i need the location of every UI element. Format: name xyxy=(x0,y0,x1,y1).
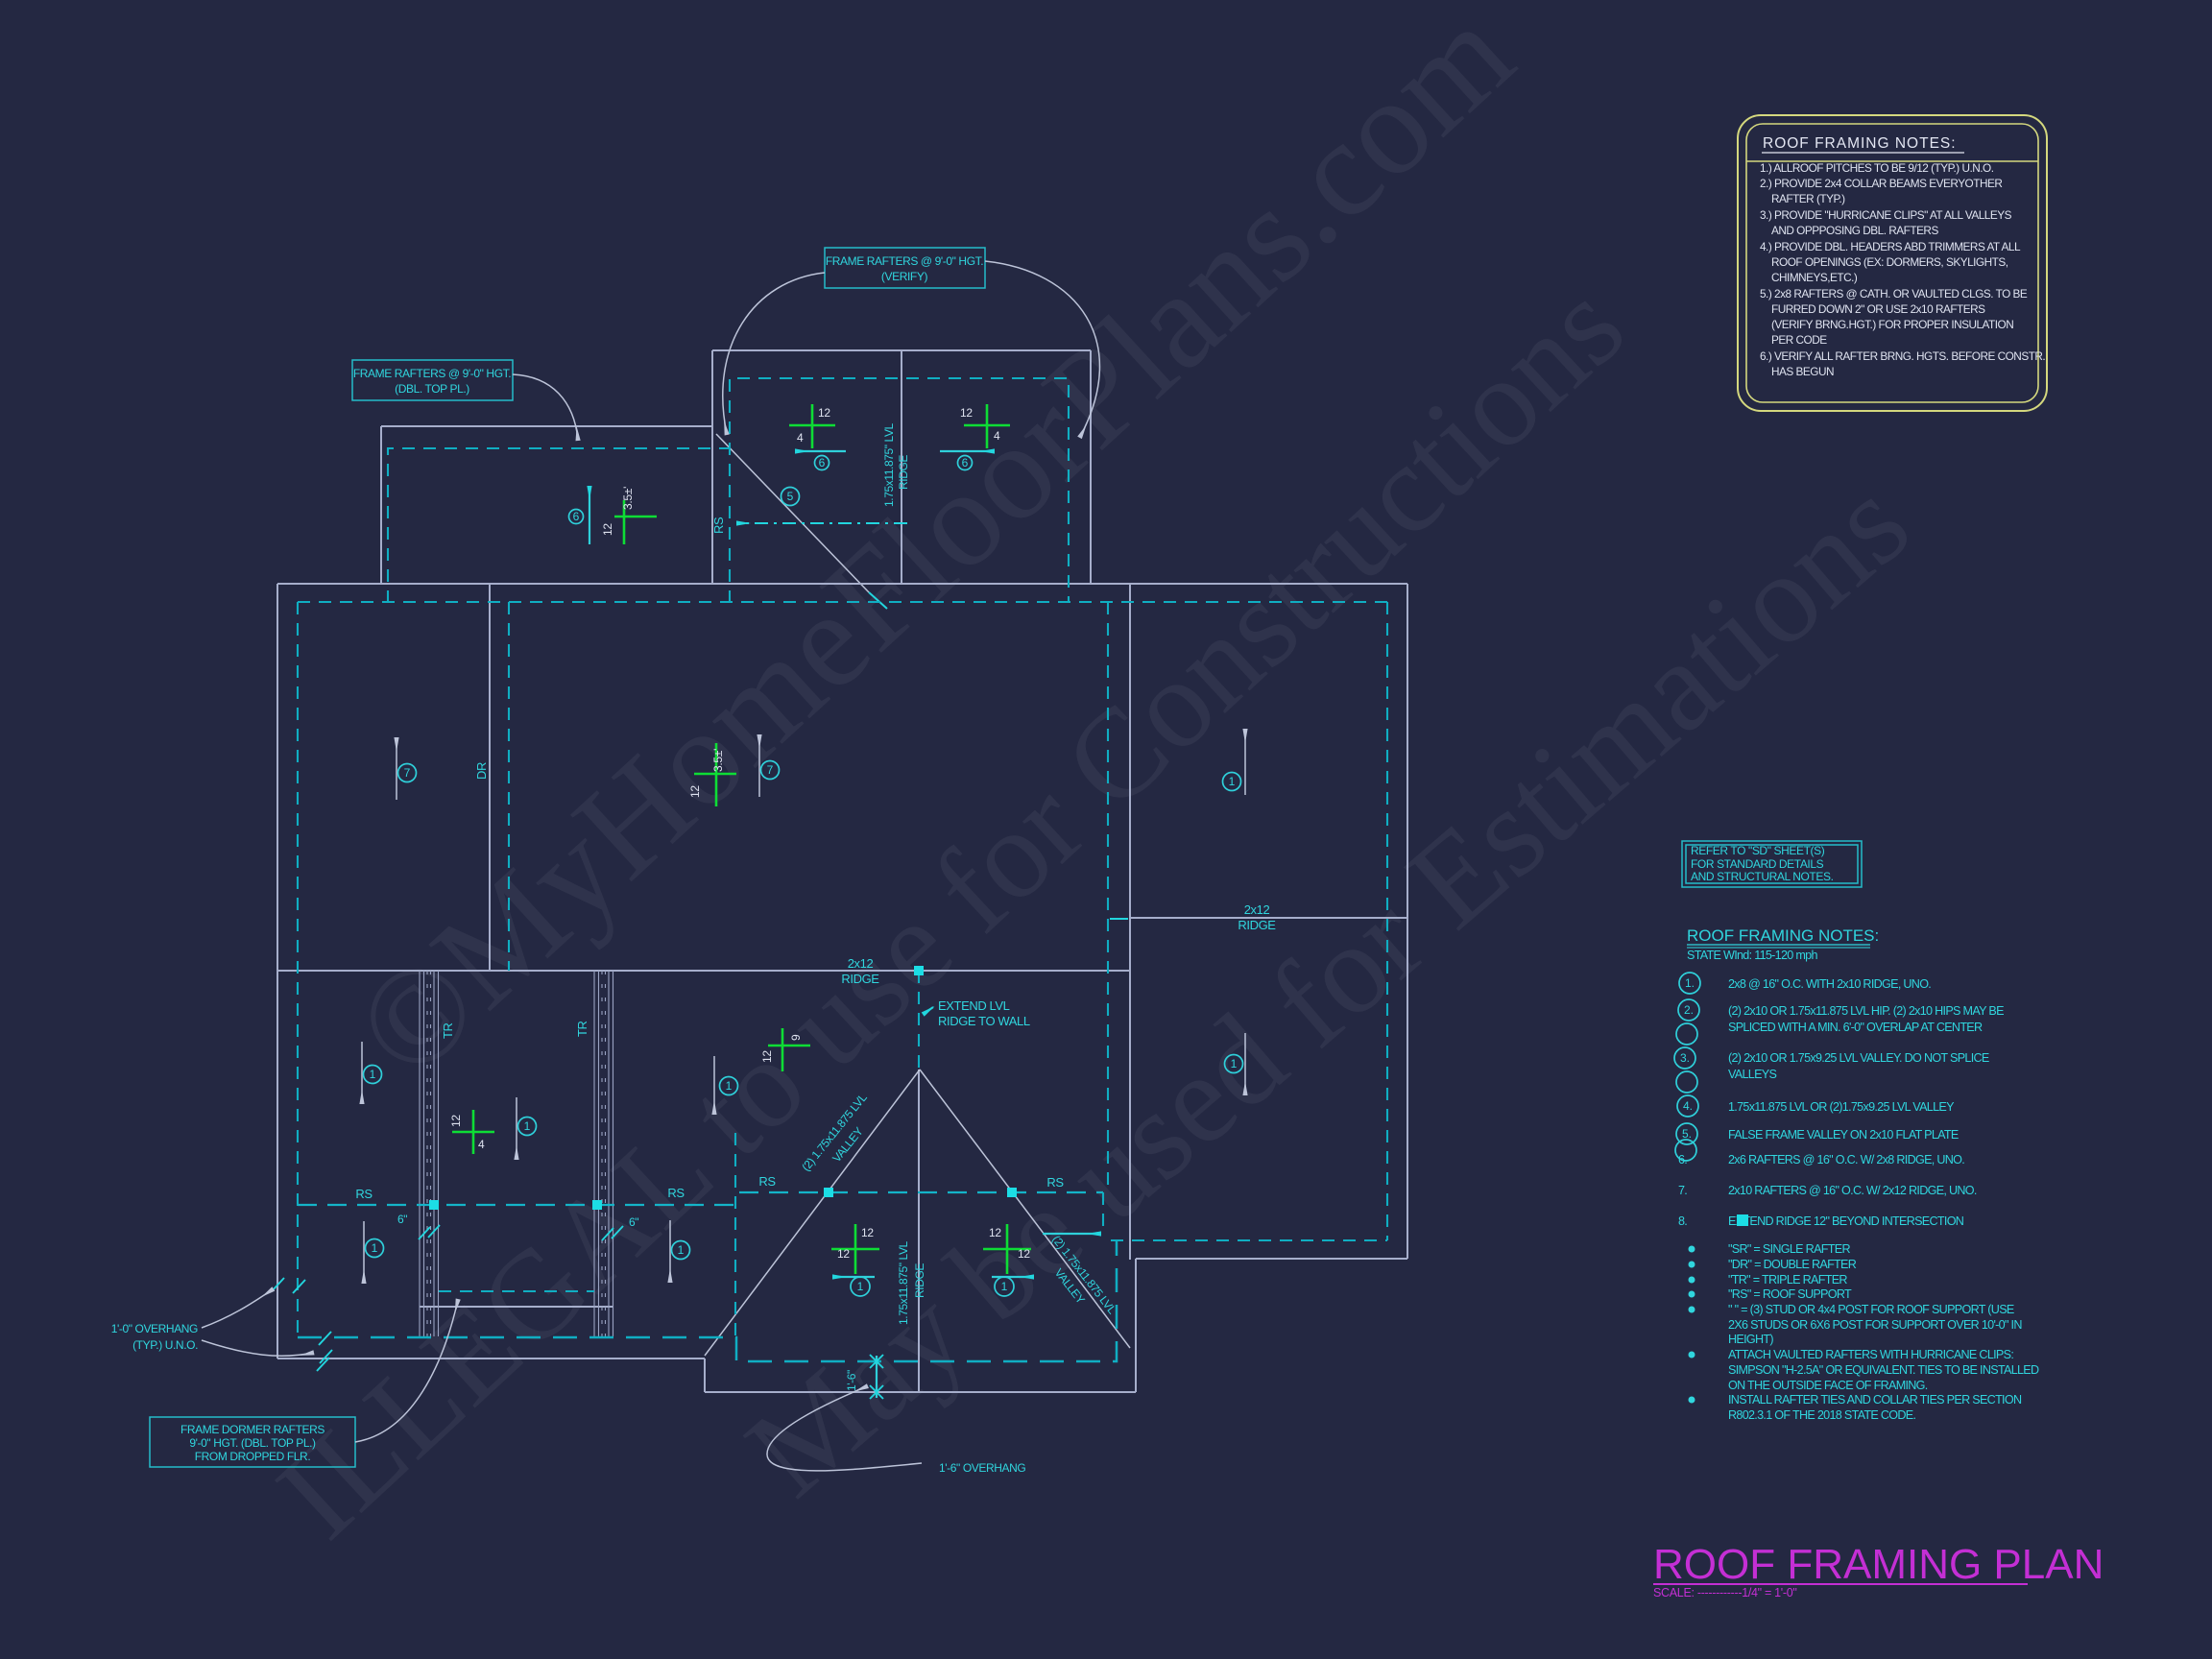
svg-text:(VERIFY): (VERIFY) xyxy=(881,270,928,283)
svg-text:PER CODE: PER CODE xyxy=(1771,333,1827,347)
svg-text:12: 12 xyxy=(960,406,973,420)
svg-text:6": 6" xyxy=(629,1215,638,1229)
svg-text:(2) 2x10 OR 1.75x9.25 LVL VALL: (2) 2x10 OR 1.75x9.25 LVL VALLEY. DO NOT… xyxy=(1728,1051,1989,1065)
svg-text:FRAME DORMER RAFTERS: FRAME DORMER RAFTERS xyxy=(180,1423,325,1436)
svg-text:(VERIFY BRNG.HGT.) FOR PROPER: (VERIFY BRNG.HGT.) FOR PROPER INSULATION xyxy=(1771,318,2013,331)
svg-text:1'-6": 1'-6" xyxy=(845,1370,858,1391)
svg-text:HAS BEGUN: HAS BEGUN xyxy=(1771,365,1834,378)
svg-text:FRAME RAFTERS @ 9'-0" HGT.: FRAME RAFTERS @ 9'-0" HGT. xyxy=(826,254,983,268)
svg-text:6": 6" xyxy=(397,1213,407,1226)
svg-text:FALSE FRAME VALLEY ON 2x10 FLA: FALSE FRAME VALLEY ON 2x10 FLAT PLATE xyxy=(1728,1128,1959,1142)
svg-text:9: 9 xyxy=(789,1034,803,1041)
svg-text:RIDGE: RIDGE xyxy=(897,455,910,490)
svg-text:7: 7 xyxy=(767,763,774,777)
svg-text:ATTACH VAULTED RAFTERS WITH HU: ATTACH VAULTED RAFTERS WITH HURRICANE CL… xyxy=(1728,1348,2013,1361)
svg-text:1.: 1. xyxy=(1685,976,1695,990)
svg-text:RS: RS xyxy=(1046,1175,1064,1190)
svg-text:7.: 7. xyxy=(1678,1184,1687,1197)
svg-text:DR: DR xyxy=(474,762,489,780)
svg-text:6: 6 xyxy=(573,510,580,523)
svg-text:AND OPPPOSING DBL. RAFTERS: AND OPPPOSING DBL. RAFTERS xyxy=(1771,224,1938,237)
svg-text:CHIMNEYS,ETC.): CHIMNEYS,ETC.) xyxy=(1771,271,1858,284)
svg-text:RIDGE: RIDGE xyxy=(913,1263,926,1298)
svg-text:1.75x11.875 LVL OR (2)1.75x9.2: 1.75x11.875 LVL OR (2)1.75x9.25 LVL VALL… xyxy=(1728,1100,1955,1114)
svg-text:6.) VERIFY ALL RAFTER BRNG. HG: 6.) VERIFY ALL RAFTER BRNG. HGTS. BEFORE… xyxy=(1760,349,2045,363)
svg-text:FURRED DOWN 2" OR USE 2x10 RAF: FURRED DOWN 2" OR USE 2x10 RAFTERS xyxy=(1771,302,1985,316)
svg-text:ROOF FRAMING PLAN: ROOF FRAMING PLAN xyxy=(1653,1541,2104,1588)
svg-text:5.: 5. xyxy=(1682,1127,1692,1141)
svg-text:12: 12 xyxy=(688,785,702,798)
svg-text:FROM DROPPED FLR.: FROM DROPPED FLR. xyxy=(195,1450,311,1463)
svg-text:3.5±': 3.5±' xyxy=(711,749,725,772)
svg-text:HEIGHT): HEIGHT) xyxy=(1728,1333,1773,1346)
svg-text:1: 1 xyxy=(1231,1057,1238,1070)
svg-text:RS: RS xyxy=(667,1186,685,1200)
svg-text:3.) PROVIDE "HURRICANE CLIPS": 3.) PROVIDE "HURRICANE CLIPS" AT ALL VAL… xyxy=(1760,208,2012,222)
svg-text:1.75x11.875" LVL: 1.75x11.875" LVL xyxy=(882,422,896,507)
svg-text:(DBL. TOP PL.): (DBL. TOP PL.) xyxy=(395,382,469,396)
svg-text:SCALE: ------------1/4" = 1'-0: SCALE: ------------1/4" = 1'-0" xyxy=(1653,1586,1797,1599)
svg-text:1.) ALLROOF PITCHES TO BE 9/1: 1.) ALLROOF PITCHES TO BE 9/12 (TYP.) U.… xyxy=(1760,161,1994,175)
svg-text:12: 12 xyxy=(837,1247,850,1261)
svg-text:FOR STANDARD DETAILS: FOR STANDARD DETAILS xyxy=(1691,857,1824,871)
svg-text:2x12: 2x12 xyxy=(848,956,874,971)
svg-text:"RS" = ROOF SUPPORT: "RS" = ROOF SUPPORT xyxy=(1728,1287,1852,1301)
svg-text:2X6 STUDS OR 6X6 POST FOR SUPP: 2X6 STUDS OR 6X6 POST FOR SUPPORT OVER 1… xyxy=(1728,1318,2022,1332)
svg-text:RIDGE: RIDGE xyxy=(1238,918,1276,932)
svg-text:INSTALL RAFTER TIES AND COLLAR: INSTALL RAFTER TIES AND COLLAR TIES PER … xyxy=(1728,1393,2022,1407)
svg-text:(2) 2x10 OR 1.75x11.875 LVL HI: (2) 2x10 OR 1.75x11.875 LVL HIP. (2) 2x1… xyxy=(1728,1004,2004,1018)
svg-text:1: 1 xyxy=(370,1068,376,1081)
svg-text:ROOF FRAMING NOTES:: ROOF FRAMING NOTES: xyxy=(1687,926,1879,945)
svg-text:EXTEND RIDGE 12" BEYOND INTERS: EXTEND RIDGE 12" BEYOND INTERSECTION xyxy=(1728,1214,1964,1228)
svg-text:VALLEYS: VALLEYS xyxy=(1728,1068,1776,1081)
svg-text:RIDGE: RIDGE xyxy=(841,972,879,986)
svg-text:4.: 4. xyxy=(1683,1099,1693,1113)
svg-text:1'-6" OVERHANG: 1'-6" OVERHANG xyxy=(939,1461,1025,1475)
svg-text:"TR" = TRIPLE RAFTER: "TR" = TRIPLE RAFTER xyxy=(1728,1273,1847,1286)
svg-text:4: 4 xyxy=(478,1138,485,1151)
svg-text:1.75x11.875" LVL: 1.75x11.875" LVL xyxy=(897,1240,910,1325)
svg-text:2x6 RAFTERS @ 16" O.C. W/ 2x8: 2x6 RAFTERS @ 16" O.C. W/ 2x8 RIDGE, UNO… xyxy=(1728,1153,1964,1166)
svg-text:12: 12 xyxy=(861,1226,874,1239)
svg-text:3.5±': 3.5±' xyxy=(621,487,635,510)
svg-text:1: 1 xyxy=(857,1280,864,1293)
svg-text:FRAME RAFTERS @ 9'-0" HGT.: FRAME RAFTERS @ 9'-0" HGT. xyxy=(353,367,511,380)
svg-text:3.: 3. xyxy=(1680,1051,1690,1065)
svg-text:R802.3.1 OF THE 2018 STATE COD: R802.3.1 OF THE 2018 STATE CODE. xyxy=(1728,1408,1915,1422)
svg-text:EXTEND LVL: EXTEND LVL xyxy=(938,998,1010,1013)
svg-text:RS: RS xyxy=(758,1174,776,1189)
svg-text:7: 7 xyxy=(404,766,411,780)
svg-text:12: 12 xyxy=(601,523,614,536)
svg-text:1: 1 xyxy=(726,1079,733,1093)
svg-text:2.) PROVIDE 2x4 COLLAR BEAMS E: 2.) PROVIDE 2x4 COLLAR BEAMS EVERYOTHER xyxy=(1760,177,2002,190)
svg-text:ROOF OPENINGS (EX: DORMERS, SK: ROOF OPENINGS (EX: DORMERS, SKYLIGHTS, xyxy=(1771,255,2008,269)
svg-text:6.: 6. xyxy=(1678,1153,1687,1166)
svg-text:ON THE OUTSIDE FACE OF FRAMING: ON THE OUTSIDE FACE OF FRAMING. xyxy=(1728,1379,1928,1392)
svg-text:4.) PROVIDE DBL. HEADERS ABD T: 4.) PROVIDE DBL. HEADERS ABD TRIMMERS AT… xyxy=(1760,240,2021,253)
svg-text:5: 5 xyxy=(787,490,794,503)
svg-text:4: 4 xyxy=(797,431,804,445)
svg-text:12: 12 xyxy=(989,1226,1001,1239)
svg-text:12: 12 xyxy=(449,1115,463,1127)
svg-text:RS: RS xyxy=(355,1187,373,1201)
svg-text:1: 1 xyxy=(1229,775,1236,788)
svg-text:12: 12 xyxy=(1018,1247,1030,1261)
svg-text:ROOF FRAMING NOTES:: ROOF FRAMING NOTES: xyxy=(1763,135,1957,152)
svg-text:" " = (3) STUD OR 4x4 POST FOR: " " = (3) STUD OR 4x4 POST FOR ROOF SUPP… xyxy=(1728,1303,2014,1316)
svg-text:"SR" = SINGLE RAFTER: "SR" = SINGLE RAFTER xyxy=(1728,1242,1850,1256)
svg-text:12: 12 xyxy=(818,406,830,420)
svg-text:SIMPSON "H-2.5A" OR EQUIVALENT: SIMPSON "H-2.5A" OR EQUIVALENT. TIES TO … xyxy=(1728,1363,2039,1377)
svg-text:(TYP.) U.N.O.: (TYP.) U.N.O. xyxy=(132,1338,198,1352)
svg-text:TR: TR xyxy=(441,1022,455,1039)
svg-text:1: 1 xyxy=(1001,1280,1008,1293)
svg-text:1'-0" OVERHANG: 1'-0" OVERHANG xyxy=(111,1322,198,1335)
svg-text:RAFTER (TYP.): RAFTER (TYP.) xyxy=(1771,192,1845,205)
svg-text:RIDGE TO WALL: RIDGE TO WALL xyxy=(938,1014,1030,1028)
svg-text:4: 4 xyxy=(994,429,1000,443)
svg-text:12: 12 xyxy=(760,1050,774,1063)
svg-text:2x12: 2x12 xyxy=(1244,902,1270,917)
svg-text:1: 1 xyxy=(524,1119,531,1133)
svg-text:8.: 8. xyxy=(1678,1214,1687,1228)
svg-text:SPLICED WITH A MIN. 6'-0" OVER: SPLICED WITH A MIN. 6'-0" OVERLAP AT CEN… xyxy=(1728,1021,1983,1034)
svg-text:"DR" = DOUBLE RAFTER: "DR" = DOUBLE RAFTER xyxy=(1728,1258,1857,1271)
svg-text:REFER TO "SD" SHEET(S): REFER TO "SD" SHEET(S) xyxy=(1691,844,1825,857)
svg-text:AND STRUCTURAL NOTES.: AND STRUCTURAL NOTES. xyxy=(1691,870,1834,883)
svg-text:6: 6 xyxy=(962,456,969,469)
svg-text:6: 6 xyxy=(819,456,826,469)
svg-text:RS: RS xyxy=(711,517,726,534)
svg-text:2x8 @ 16" O.C. WITH 2x10 RIDGE: 2x8 @ 16" O.C. WITH 2x10 RIDGE, UNO. xyxy=(1728,977,1931,991)
svg-text:2.: 2. xyxy=(1684,1003,1694,1017)
svg-text:1: 1 xyxy=(372,1241,378,1255)
svg-text:2x10 RAFTERS @ 16" O.C. W/ 2x1: 2x10 RAFTERS @ 16" O.C. W/ 2x12 RIDGE, U… xyxy=(1728,1184,1977,1197)
svg-text:STATE WInd: 115-120 mph: STATE WInd: 115-120 mph xyxy=(1687,949,1817,962)
svg-text:5.) 2x8 RAFTERS @ CATH. OR VAU: 5.) 2x8 RAFTERS @ CATH. OR VAULTED CLGS.… xyxy=(1760,287,2028,301)
svg-text:1: 1 xyxy=(678,1243,685,1257)
svg-text:TR: TR xyxy=(575,1021,589,1037)
svg-text:9'-0" HGT. (DBL. TOP PL.): 9'-0" HGT. (DBL. TOP PL.) xyxy=(189,1436,316,1450)
